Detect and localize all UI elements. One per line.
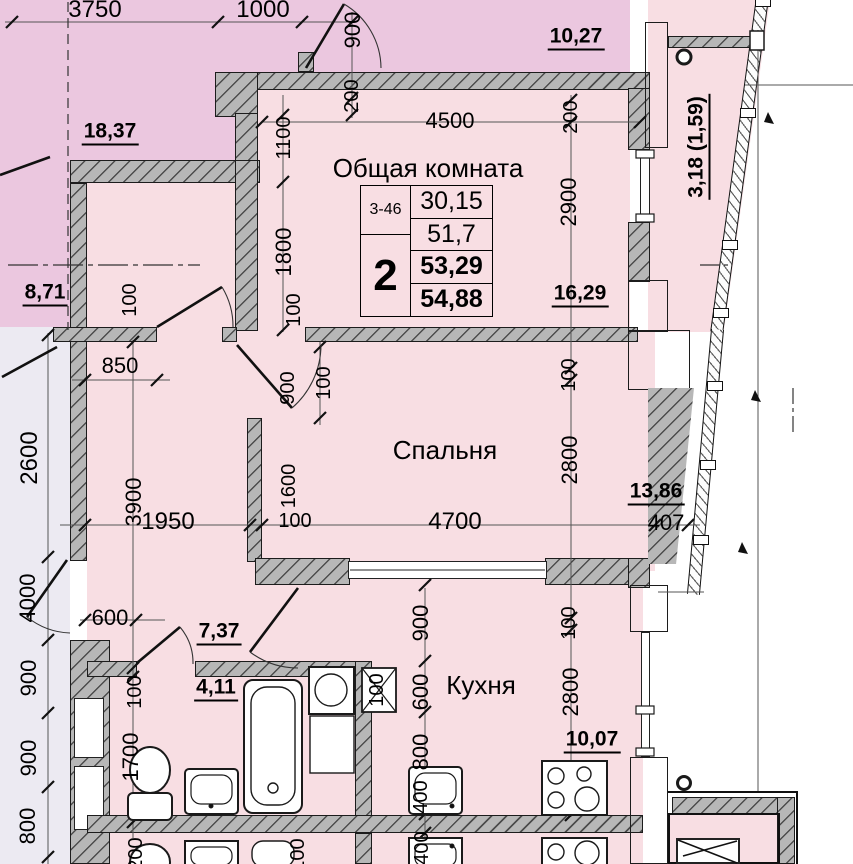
elevator-outline: [668, 792, 797, 864]
cabinet: [310, 716, 354, 773]
column-marker: [678, 777, 691, 790]
floor-plan: 3750100090020011004500200290018001001009…: [0, 0, 853, 864]
linework-layer: [0, 0, 853, 864]
living-area-value: 30,15: [411, 186, 492, 219]
total-area-value: 51,7: [411, 219, 492, 252]
fixtures: [128, 31, 764, 864]
facade-arrows: [738, 112, 774, 554]
column-marker: [677, 50, 691, 64]
door-swing-arcs: [27, 4, 381, 668]
unit-info-table: 3-46 2 30,15 51,7 53,29 54,88: [360, 185, 493, 317]
dimension-lines: [5, 12, 853, 864]
area-with-balcony-high: 54,88: [411, 284, 492, 316]
unit-number: 3-46: [361, 186, 410, 235]
door-leaves: [0, 4, 344, 663]
toilet: [130, 747, 170, 793]
balcony-divider-cap: [750, 31, 764, 50]
rooms-count: 2: [361, 235, 410, 316]
area-with-balcony-low: 53,29: [411, 251, 492, 284]
